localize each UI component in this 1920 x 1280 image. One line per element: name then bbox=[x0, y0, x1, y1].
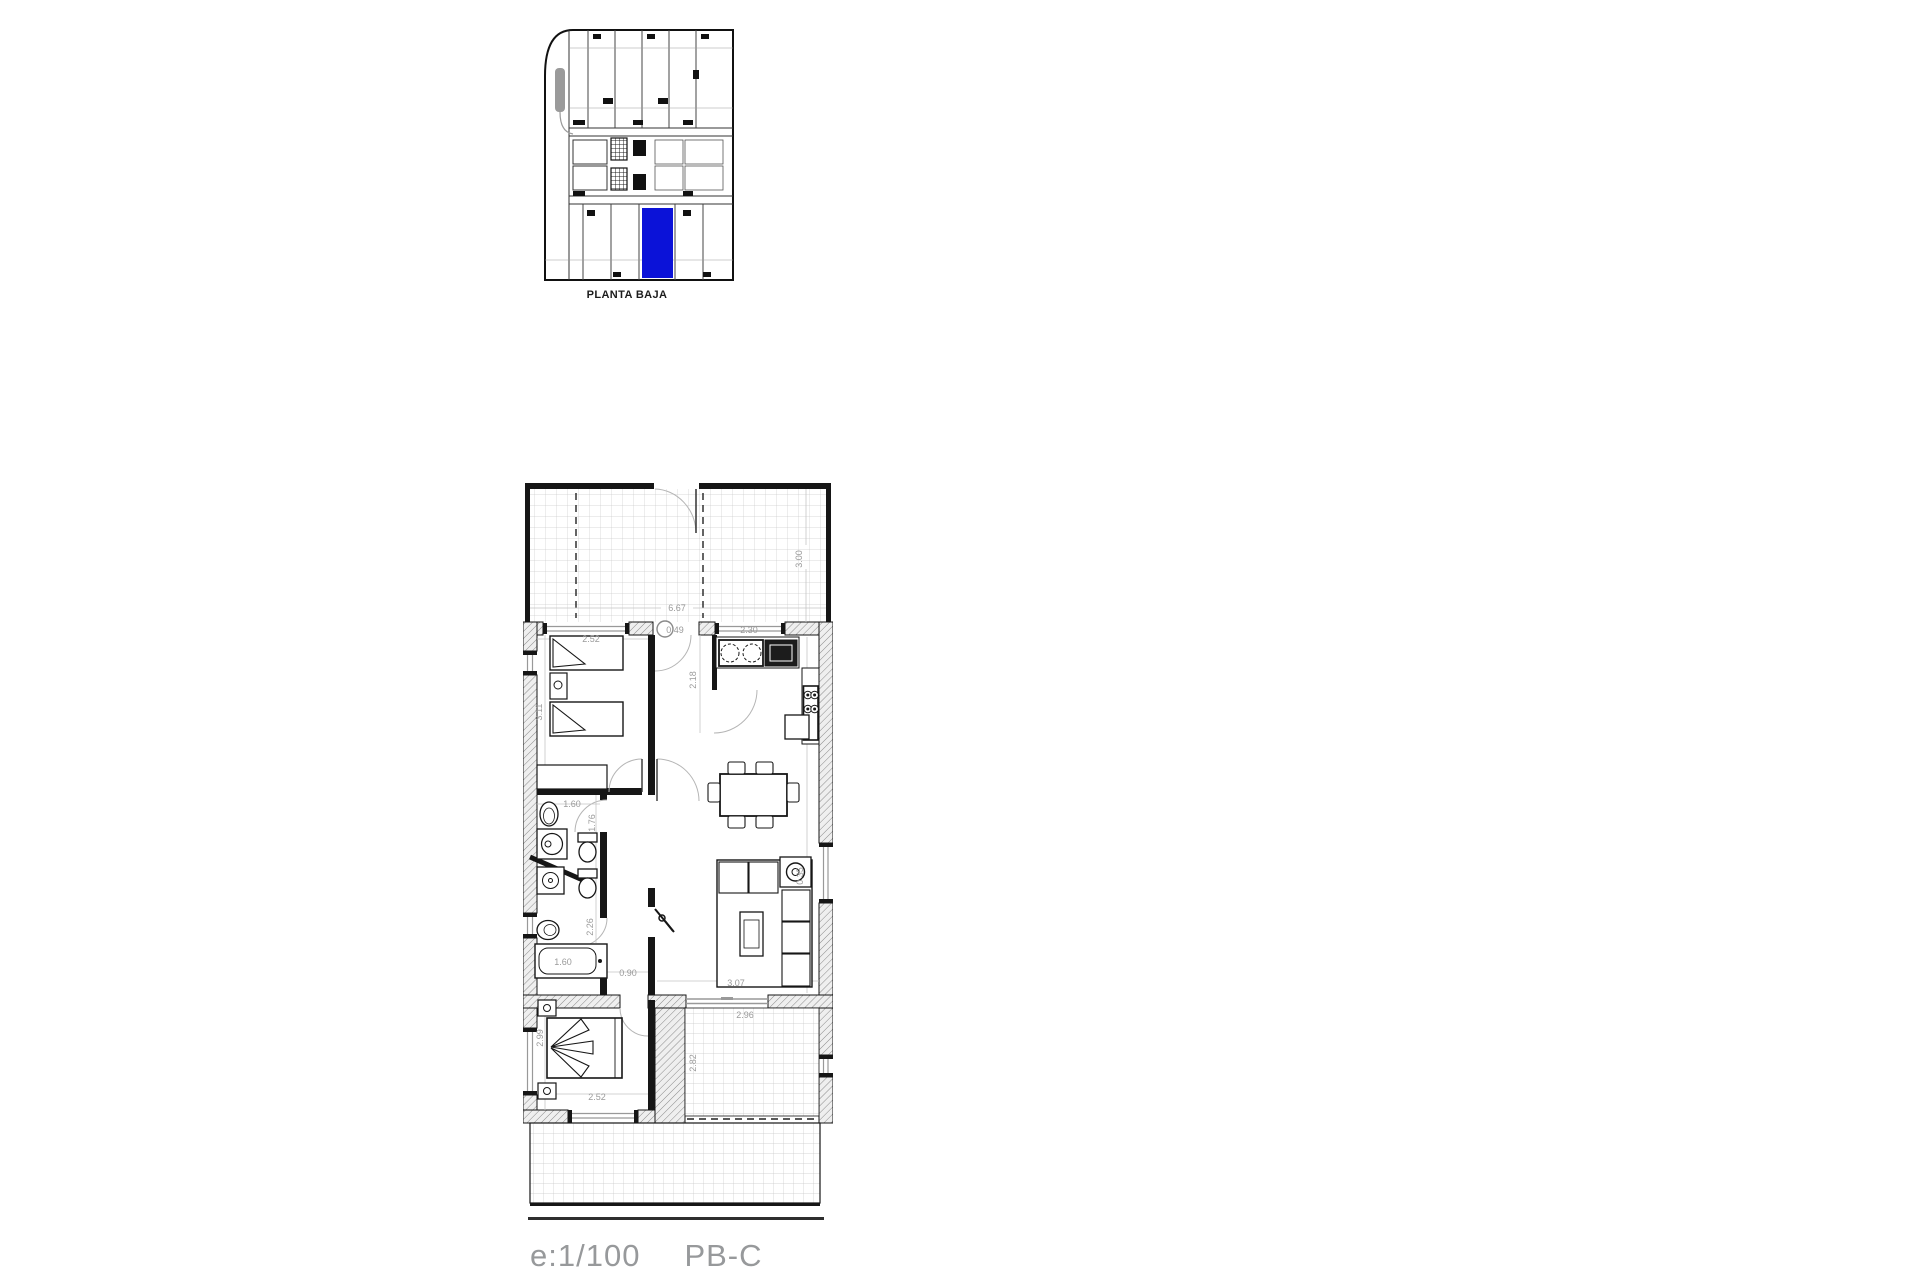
dim-bathtub-length: 1.60 bbox=[554, 957, 572, 967]
unit-label: PB-C bbox=[684, 1238, 762, 1273]
dim-bath1-depth: 1.76 bbox=[587, 814, 597, 832]
toilet bbox=[578, 869, 597, 878]
dim-patio-depth: 2.82 bbox=[688, 1054, 698, 1072]
dim-living-width: 3.07 bbox=[727, 978, 745, 988]
cabinet bbox=[785, 715, 809, 739]
dim-terrace-depth: 3.00 bbox=[794, 550, 804, 568]
terrace-bottom bbox=[530, 1123, 820, 1205]
dining-area bbox=[708, 762, 799, 828]
dining-table bbox=[720, 774, 787, 816]
dim-bedroom1-depth: 2.99 bbox=[535, 1029, 545, 1047]
dim-terrace-width: 6.67 bbox=[668, 603, 686, 613]
dim-corridor-width: 0.90 bbox=[619, 968, 637, 978]
terrace-top bbox=[525, 483, 831, 622]
ramp bbox=[555, 68, 565, 112]
dim-hall-depth: 2.18 bbox=[688, 671, 698, 689]
dim-bath1-width: 1.60 bbox=[563, 799, 581, 809]
dim-bedroom2-depth: 3.11 bbox=[534, 704, 544, 721]
scale-label: e:1/100 bbox=[530, 1238, 640, 1273]
dim-patio-width: 2.96 bbox=[736, 1010, 754, 1020]
highlighted-unit bbox=[642, 208, 673, 278]
title-separator bbox=[528, 1217, 824, 1220]
plan-footer: e:1/100PB-C bbox=[530, 1238, 763, 1274]
toilet bbox=[578, 833, 597, 842]
dresser bbox=[537, 765, 607, 789]
main-floor-plan: 6.67 3.00 2.52 3.11 0.49 2.18 2.30 1.60 … bbox=[523, 483, 833, 1208]
dim-bedroom2-width: 2.52 bbox=[582, 634, 600, 644]
dim-kitchen-width: 2.30 bbox=[740, 625, 758, 635]
dim-entry-width: 0.49 bbox=[666, 625, 684, 635]
overview-caption: PLANTA BAJA bbox=[543, 289, 711, 301]
bedroom-2 bbox=[537, 636, 623, 789]
overview-plan bbox=[543, 28, 735, 282]
dim-bath2-depth: 2.26 bbox=[585, 918, 595, 936]
elevator-icon bbox=[611, 138, 627, 160]
entrance-door bbox=[655, 909, 674, 932]
dim-bedroom1-width: 2.52 bbox=[588, 1092, 606, 1102]
elevator-icon bbox=[611, 168, 627, 190]
patio bbox=[685, 1008, 819, 1119]
bedroom-1 bbox=[538, 1000, 622, 1099]
kitchen bbox=[716, 637, 819, 744]
dim-sofa-side: 0.35 bbox=[795, 867, 805, 885]
